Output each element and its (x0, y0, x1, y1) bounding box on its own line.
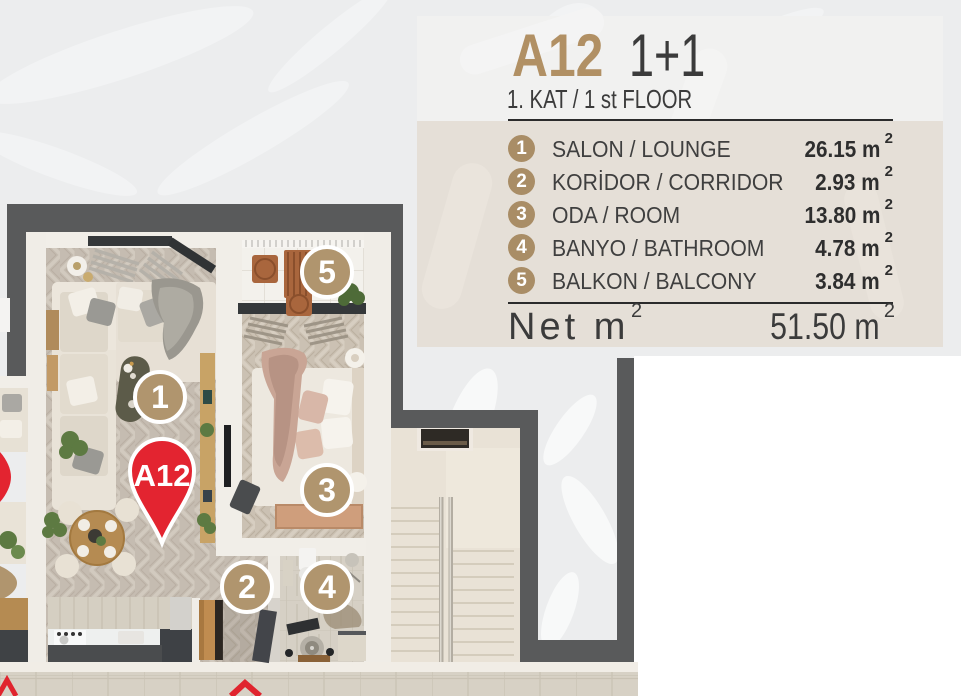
svg-text:A12: A12 (134, 458, 191, 493)
svg-text:4: 4 (318, 569, 336, 605)
svg-text:3: 3 (318, 472, 336, 508)
svg-text:2: 2 (238, 569, 256, 605)
svg-text:5: 5 (318, 254, 336, 290)
svg-text:1: 1 (151, 379, 169, 415)
